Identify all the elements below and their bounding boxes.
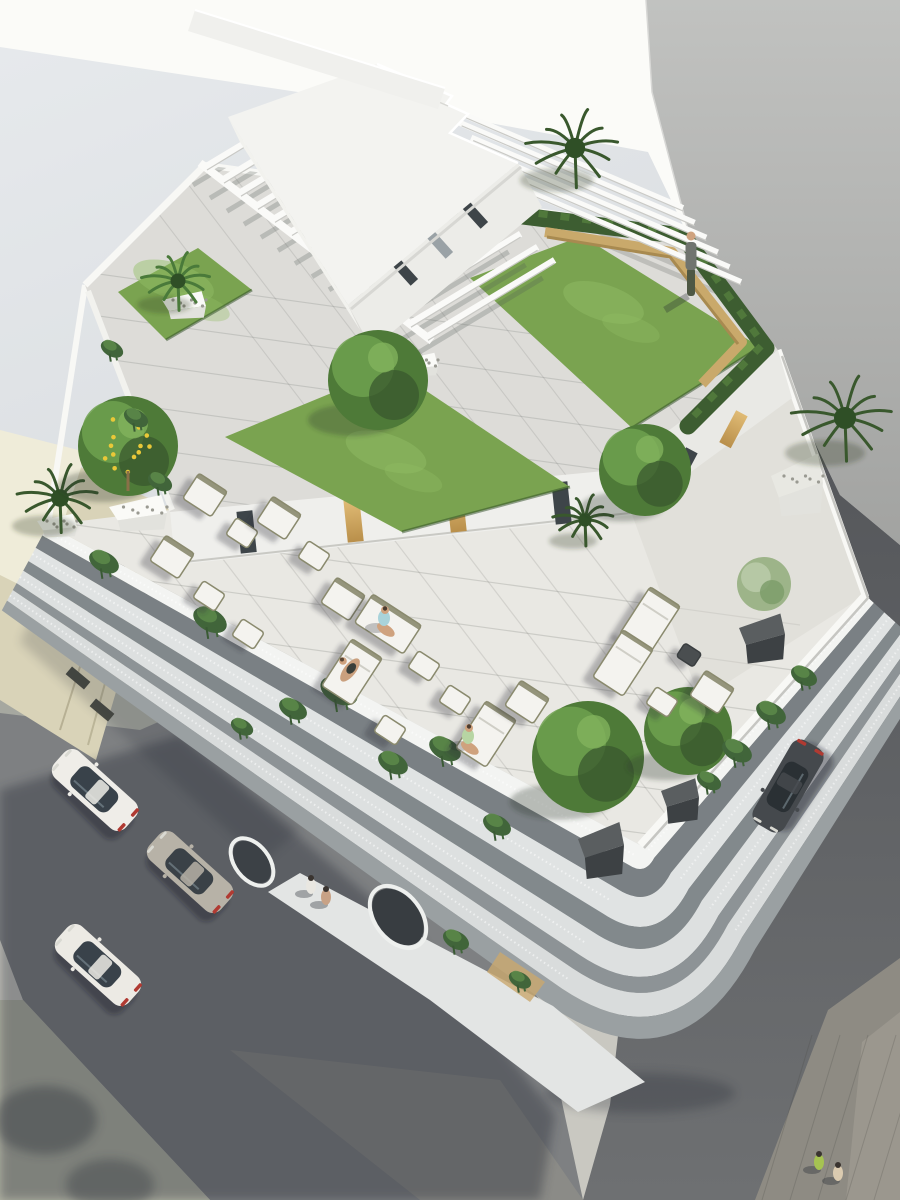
vine-strand (110, 354, 111, 362)
pebbles (131, 508, 134, 511)
pebbles (425, 358, 428, 361)
person-hair (383, 606, 387, 610)
lemon-fruit (111, 452, 116, 457)
palm-core (565, 138, 585, 158)
person-head (308, 875, 314, 881)
lemon-fruit (144, 433, 149, 438)
lemon-fruit (103, 456, 108, 461)
pebbles (146, 505, 149, 508)
vine-strand (116, 353, 117, 361)
lemon-fruit (138, 444, 143, 449)
lemon-fruit (111, 417, 116, 422)
pebbles (808, 477, 811, 480)
pebbles (804, 474, 807, 477)
lemon-fruit (136, 450, 141, 455)
person-head (687, 232, 696, 241)
pebbles (795, 480, 798, 483)
lemon-fruit (111, 435, 116, 440)
palm-core (834, 407, 856, 429)
vine-strand (524, 984, 525, 992)
vine-strand (706, 786, 707, 794)
pebbles (204, 298, 207, 301)
pebbles (436, 358, 439, 361)
pebbles (165, 505, 168, 508)
canopy-light (577, 715, 611, 749)
person-torso (686, 242, 697, 270)
vine-strand (246, 731, 247, 739)
lemon-fruit (132, 455, 137, 460)
canopy-light (368, 343, 398, 373)
vine-strand (518, 985, 519, 993)
pebbles (160, 511, 163, 514)
scene-root (0, 0, 900, 1200)
person-hair (340, 658, 344, 662)
pebbles (821, 474, 824, 477)
person-hair (467, 724, 471, 728)
vine-strand (133, 423, 134, 431)
render-stage (0, 0, 900, 1200)
architectural-render-image (0, 0, 900, 1200)
person-head (835, 1162, 841, 1168)
olive-dark (760, 580, 784, 604)
canopy-dark (578, 746, 634, 802)
person-legs (687, 268, 695, 296)
pebbles (151, 508, 154, 511)
vine-strand (801, 682, 802, 691)
pebbles (427, 361, 430, 364)
pebbles (136, 511, 139, 514)
pebbles (782, 474, 785, 477)
pebbles (434, 364, 437, 367)
pebbles (817, 480, 820, 483)
pebbles (122, 505, 125, 508)
vine-strand (453, 946, 454, 955)
render-canvas (0, 0, 900, 1200)
pebbles (201, 304, 204, 307)
canopy-dark (637, 461, 683, 507)
canopy-dark (369, 370, 419, 420)
vine-strand (240, 732, 241, 740)
vine-strand (157, 487, 158, 495)
lemon-fruit (109, 443, 114, 448)
lemon-fruit (147, 444, 152, 449)
person-head (323, 886, 329, 892)
pebbles (791, 477, 794, 480)
lemon-fruit (112, 466, 117, 471)
canopy-light (636, 436, 664, 464)
palm-core (171, 274, 186, 289)
person-head (816, 1151, 822, 1157)
canopy-dark (680, 722, 724, 766)
